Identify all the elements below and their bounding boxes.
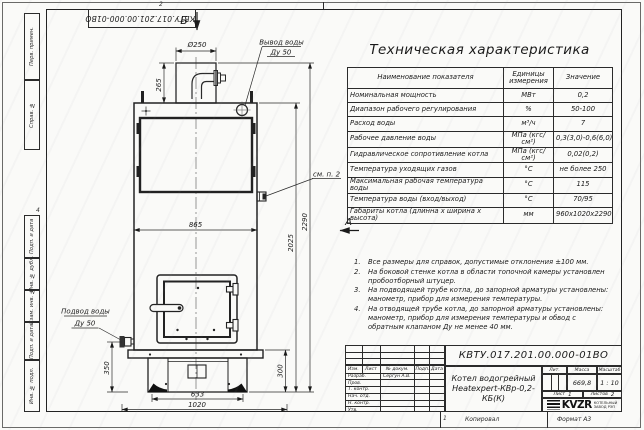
mount-cross-marker	[142, 107, 151, 116]
dim-265: 265	[155, 63, 174, 103]
row-name: Температура воды (вход/выход)	[348, 193, 504, 207]
row-name: Температура уходящих газов	[348, 163, 504, 177]
zone-tick-top	[323, 2, 324, 9]
svg-text:265: 265	[155, 78, 163, 92]
table-row: Рабочее давление водыМПа (кгс/см²)0,3(3,…	[348, 131, 613, 147]
note-item: 3.На подводящей трубе котла, до запорной…	[351, 286, 613, 304]
row-value: 50-100	[554, 103, 613, 117]
note-number: 1.	[351, 258, 368, 267]
table-row: Температура воды (вход/выход)°С70/95	[348, 193, 613, 207]
tech-table: Наименование показателя Единицы измерени…	[347, 67, 613, 224]
row-unit: МПа (кгс/см²)	[504, 147, 554, 163]
frame-label-inv-dubl: Инв. № дубл.	[24, 258, 40, 290]
frame-label-vzam-inv: Взам. инв. №	[24, 290, 40, 322]
sheet-value: 1	[568, 392, 571, 398]
svg-text:865: 865	[189, 221, 203, 229]
revision-ext-grid	[345, 345, 445, 365]
view-b-arrow: Б	[180, 12, 197, 30]
svg-text:1020: 1020	[188, 401, 206, 409]
row-unit: °С	[504, 177, 554, 193]
row-unit: °С	[504, 163, 554, 177]
sheet-cell: Лист 1	[542, 391, 583, 398]
row-name: Диапазон рабочего регулирования	[348, 103, 504, 117]
svg-text:Ду 50: Ду 50	[270, 49, 292, 57]
bottom-tick-2	[547, 412, 548, 428]
sheets-label: Листов	[591, 392, 608, 397]
drawing-sheet: 2 4 1 Копировал Формат А3 Перв. примен. …	[0, 0, 644, 430]
sheets-value: 2	[611, 392, 614, 398]
title-block: Изм. Лист № докум. Подп. Дата Разраб. Се…	[345, 345, 622, 412]
row-unit: МПа (кгс/см²)	[504, 131, 554, 147]
zone-mark-top: 2	[159, 1, 163, 8]
row-value: 960х1020х2290	[554, 207, 613, 223]
row-unit: МВт	[504, 89, 554, 103]
note-text: На отводящей трубе котла, до запорной ар…	[368, 305, 613, 331]
row-unit: м³/ч	[504, 117, 554, 131]
chimney	[176, 63, 226, 103]
svg-text:Ду 50: Ду 50	[74, 320, 96, 328]
table-row: Гидравлическое сопротивление котлаМПа (к…	[348, 147, 613, 163]
frame-label-podp-data-2: Подп. и дата	[24, 322, 40, 360]
note-text: На подводящей трубе котла, до запорной а…	[368, 286, 613, 304]
sig-row-label: Н. контр.	[348, 401, 370, 406]
note-text: Все размеры для справок, допустимые откл…	[368, 258, 613, 267]
notes-list: 1.Все размеры для справок, допустимые от…	[351, 258, 613, 333]
row-value: 0,2	[554, 89, 613, 103]
row-unit: %	[504, 103, 554, 117]
scale-label: Масштаб	[597, 366, 622, 374]
product-name-line2: Heatexpert-КВр-0,2-КБ(К)	[446, 384, 541, 404]
sig-row-label: Нач. отд.	[348, 394, 370, 399]
furnace-door	[150, 275, 238, 343]
mass-label: Масса	[567, 366, 597, 374]
table-row: Температура уходящих газов°Сне более 250	[348, 163, 613, 177]
kvzr-logo-icon	[547, 400, 560, 410]
frame-label-podp-data-1: Подп. и дата	[24, 215, 40, 258]
boiler-front-view-drawing: Б Ø250 265	[46, 9, 366, 412]
note-number: 4.	[351, 305, 368, 331]
col-dokum: № докум.	[386, 367, 409, 372]
dim-633-1020: 633 1020	[122, 391, 287, 412]
col-header-name: Наименование показателя	[348, 68, 504, 89]
row-unit: мм	[504, 207, 554, 223]
copied-label: Копировал	[465, 416, 499, 423]
product-name-line1: Котел водогрейный	[446, 374, 541, 384]
product-name: Котел водогрейный Heatexpert-КВр-0,2-КБ(…	[445, 366, 542, 412]
base-support	[128, 350, 263, 392]
organization-cell: KVZR КОТЕЛЬНЫЙ ЗАВОД РЭП	[542, 398, 622, 412]
col-data: Дата	[431, 367, 443, 372]
note-item: 1.Все размеры для справок, допустимые от…	[351, 258, 613, 267]
tech-table-header: Наименование показателя Единицы измерени…	[348, 68, 613, 89]
sampling-fitting: см. п. 2	[257, 171, 341, 202]
frame-label-perv-primen: Перв. примен.	[24, 13, 40, 80]
col-header-units: Единицы измерения	[504, 68, 554, 89]
frame-label-inv-podl: Инв. № подл.	[24, 360, 40, 412]
row-value: 0,02(0,2)	[554, 147, 613, 163]
table-row: Максимальная рабочая температура воды°С1…	[348, 177, 613, 193]
col-izm: Изм.	[348, 367, 359, 372]
zone-mark-bottom: 1	[443, 415, 447, 422]
svg-text:Б: Б	[180, 14, 188, 27]
frame-label-sprav-no: Справ. №	[24, 80, 40, 150]
svg-text:Вывод воды: Вывод воды	[259, 39, 304, 47]
row-name: Рабочее давление воды	[348, 131, 504, 147]
table-row: Расход водым³/ч7	[348, 117, 613, 131]
logo-sub-line2: ЗАВОД РЭП	[594, 405, 618, 409]
row-name: Габариты котла (длинна х ширина х высота…	[348, 207, 504, 223]
svg-text:633: 633	[191, 391, 204, 399]
lit-label: Лит.	[542, 366, 567, 374]
note-number: 2.	[351, 268, 368, 286]
mass-value: 669,8	[567, 374, 597, 391]
scale-value: 1 : 10	[597, 374, 622, 391]
lit-value	[542, 374, 567, 391]
table-row: Номинальная мощностьМВт0,2	[348, 89, 613, 103]
row-name: Гидравлическое сопротивление котла	[348, 147, 504, 163]
sig-row-label: Пров.	[348, 381, 361, 386]
table-row: Диапазон рабочего регулирования%50-100	[348, 103, 613, 117]
sig-row-label: Разраб.	[348, 374, 366, 379]
row-name: Расход воды	[348, 117, 504, 131]
note-text: На боковой стенке котла в области топочн…	[368, 268, 613, 286]
svg-text:300: 300	[277, 364, 285, 378]
bottom-tick-1	[440, 412, 441, 428]
svg-text:см. п. 2: см. п. 2	[313, 171, 341, 179]
sig-row-name: Сергун А.В.	[383, 374, 411, 379]
svg-text:2025: 2025	[287, 234, 295, 252]
row-value: 70/95	[554, 193, 613, 207]
col-podp: Подп.	[416, 367, 430, 372]
note-item: 2.На боковой стенке котла в области топо…	[351, 268, 613, 286]
svg-text:Подвод воды: Подвод воды	[61, 308, 110, 316]
format-label: Формат А3	[557, 416, 591, 423]
doc-number: КВТУ.017.201.00.000-01ВО	[445, 345, 622, 366]
row-value: не более 250	[554, 163, 613, 177]
row-name: Максимальная рабочая температура воды	[348, 177, 504, 193]
sig-row-label: Утв.	[348, 408, 358, 413]
row-value: 0,3(3,0)-0,6(6,0)	[554, 131, 613, 147]
svg-text:2290: 2290	[301, 213, 309, 231]
kvzr-logo-text: KVZR	[562, 399, 592, 411]
col-list: Лист	[365, 367, 377, 372]
note-number: 3.	[351, 286, 368, 304]
water-inlet: Подвод воды Ду 50	[61, 308, 134, 348]
note-item: 4.На отводящей трубе котла, до запорной …	[351, 305, 613, 331]
table-row: Габариты котла (длинна х ширина х высота…	[348, 207, 613, 223]
row-unit: °С	[504, 193, 554, 207]
sheets-cell: Листов 2	[583, 391, 622, 398]
svg-text:350: 350	[103, 361, 111, 375]
signature-grid: Изм. Лист № докум. Подп. Дата Разраб. Се…	[345, 365, 445, 412]
water-outlet: Вывод воды Ду 50	[234, 39, 305, 119]
row-value: 115	[554, 177, 613, 193]
sig-row-label: Т. контр.	[348, 387, 369, 392]
kvzr-logo-subtext: КОТЕЛЬНЫЙ ЗАВОД РЭП	[594, 401, 618, 410]
dim-865: 865	[134, 221, 257, 230]
svg-text:Ø250: Ø250	[187, 41, 207, 49]
sheet-label: Лист	[553, 392, 565, 397]
tech-table-title: Техническая характеристика	[347, 42, 612, 58]
row-value: 7	[554, 117, 613, 131]
col-header-value: Значение	[554, 68, 613, 89]
zone-mark-left: 4	[36, 207, 40, 214]
row-name: Номинальная мощность	[348, 89, 504, 103]
